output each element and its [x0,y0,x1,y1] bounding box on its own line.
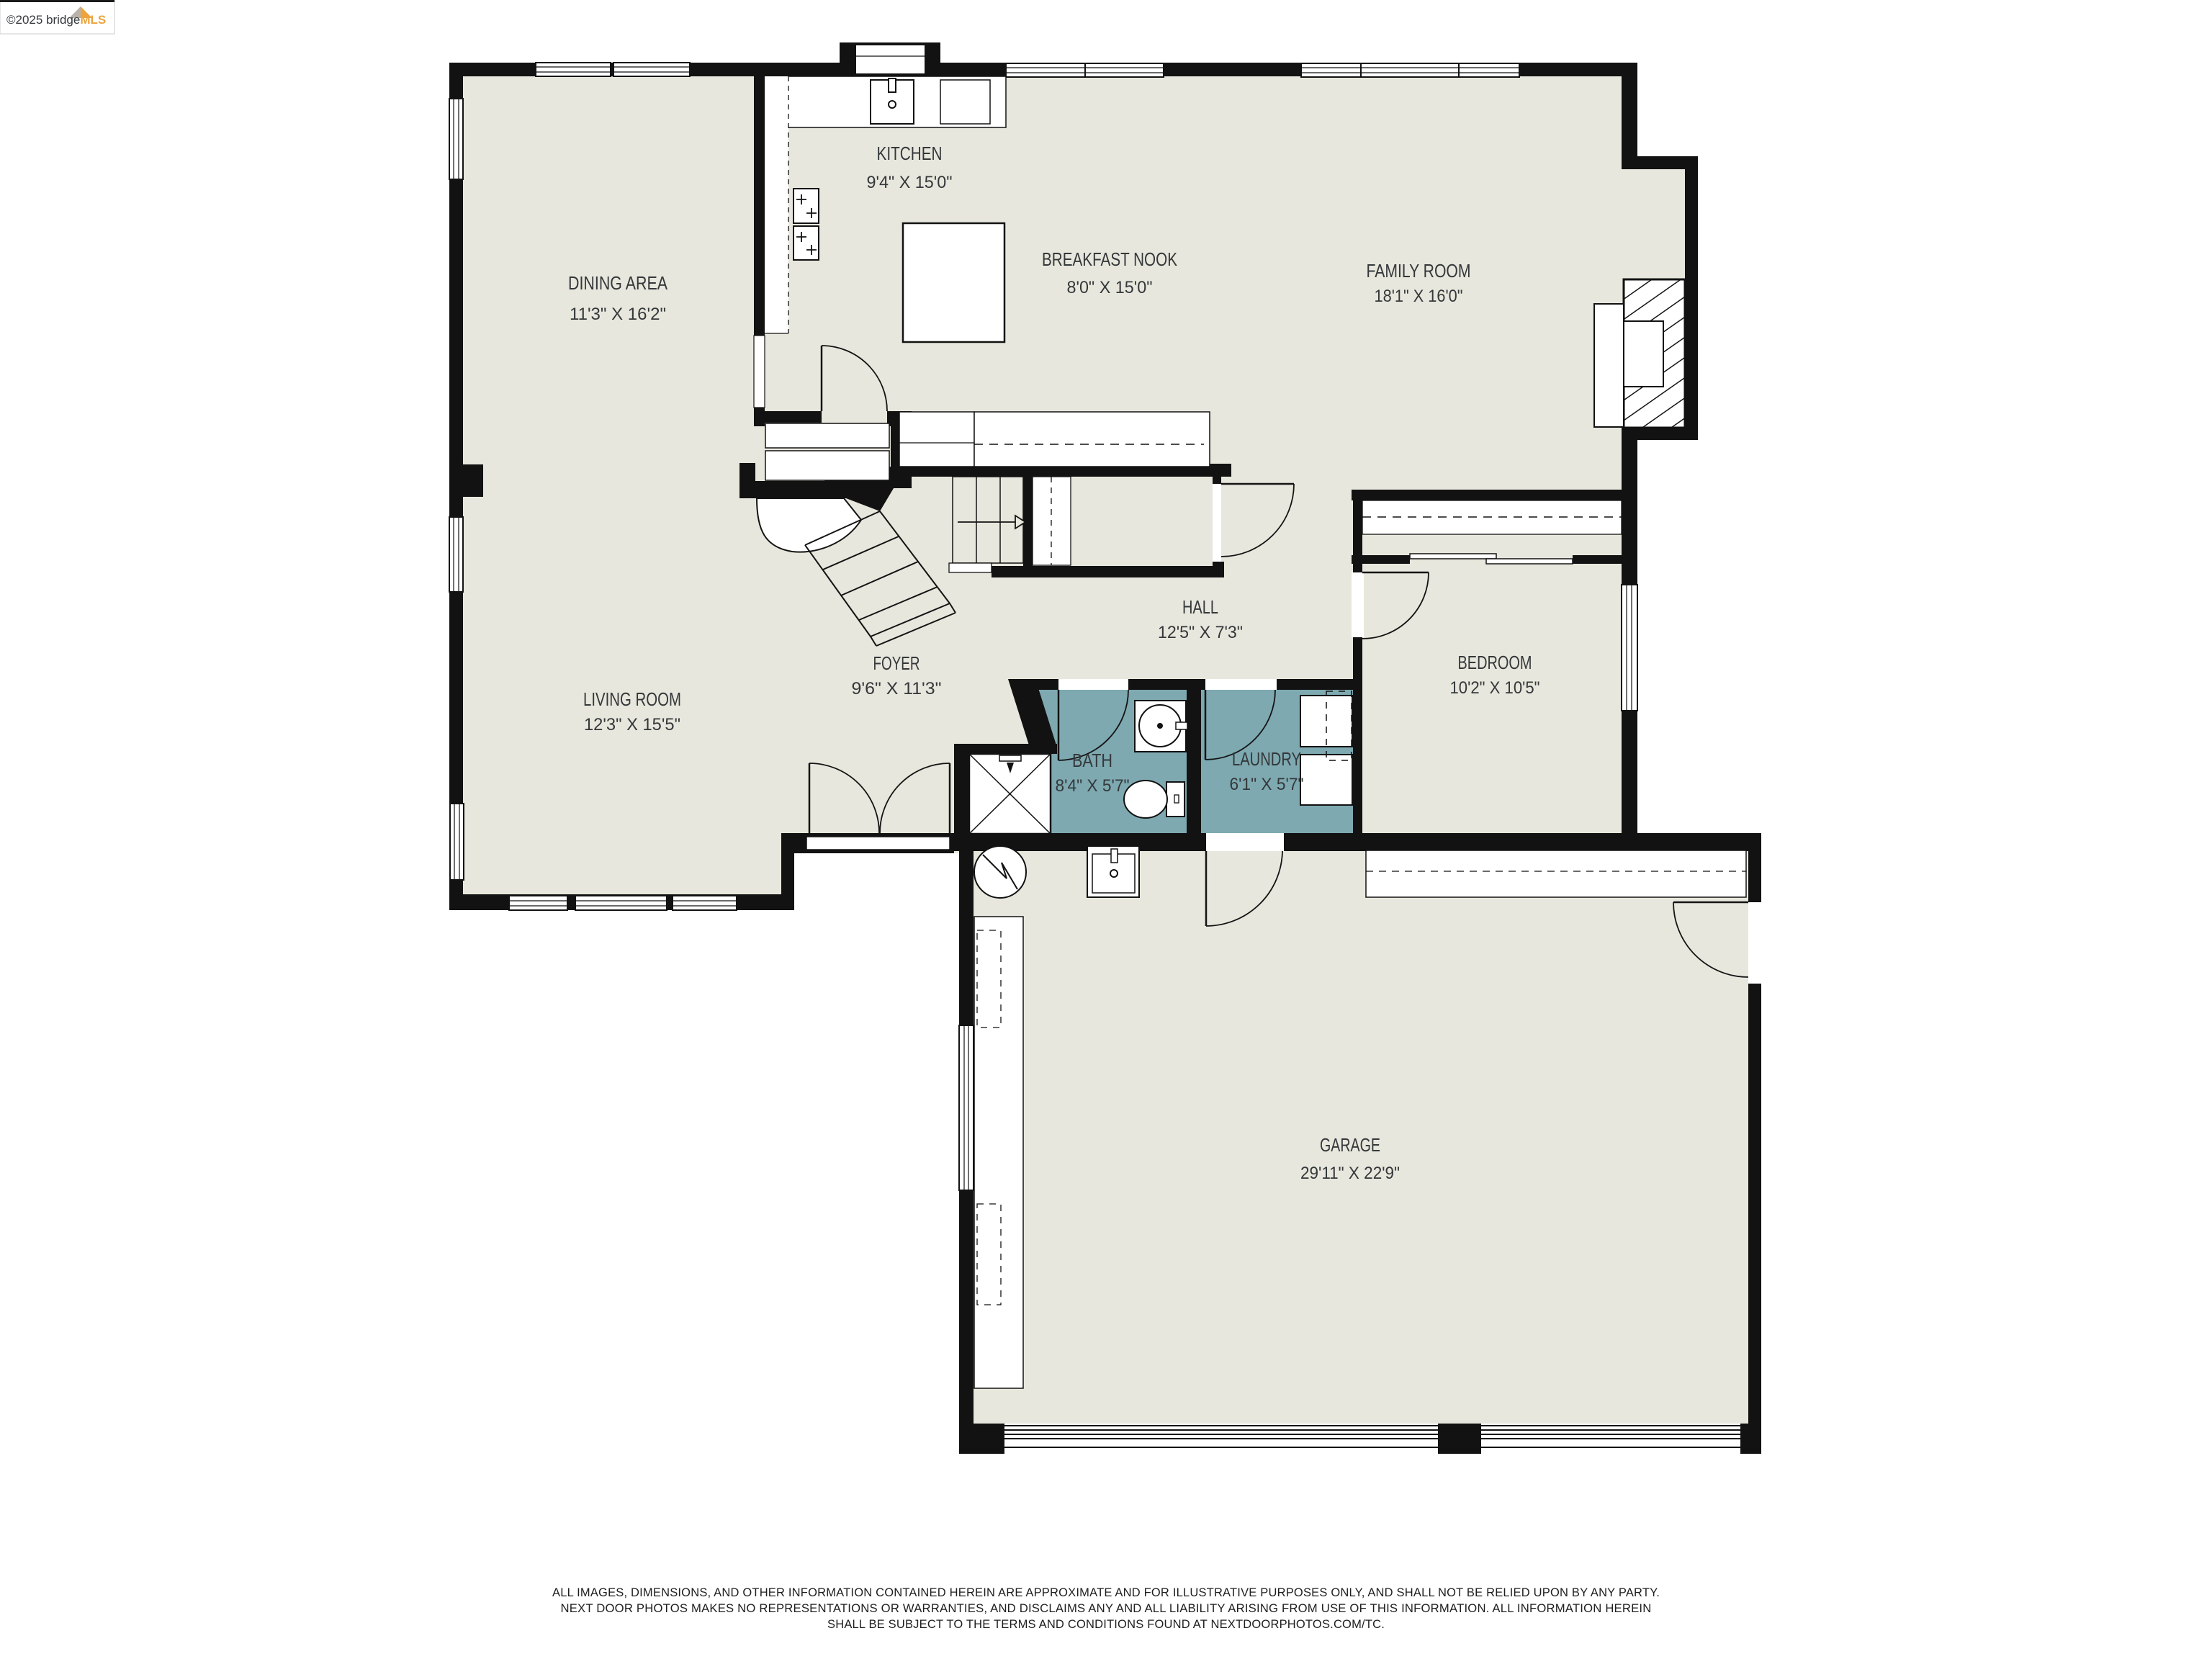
svg-text:©2025 bridgeMLS: ©2025 bridgeMLS [6,13,106,27]
svg-text:ALL IMAGES, DIMENSIONS, AND OT: ALL IMAGES, DIMENSIONS, AND OTHER INFORM… [552,1586,1660,1599]
svg-text:GARAGE: GARAGE [1320,1134,1380,1156]
svg-text:SHALL BE SUBJECT TO THE TERMS: SHALL BE SUBJECT TO THE TERMS AND CONDIT… [827,1617,1385,1631]
svg-text:FOYER: FOYER [873,652,920,674]
svg-text:29'11" X 22'9": 29'11" X 22'9" [1300,1164,1400,1183]
svg-text:18'1" X 16'0": 18'1" X 16'0" [1375,287,1463,306]
svg-text:8'0" X 15'0": 8'0" X 15'0" [1067,278,1153,297]
svg-text:NEXT DOOR PHOTOS MAKES NO REPR: NEXT DOOR PHOTOS MAKES NO REPRESENTATION… [561,1601,1652,1615]
svg-text:12'3" X 15'5": 12'3" X 15'5" [584,715,680,734]
svg-text:10'2" X 10'5": 10'2" X 10'5" [1450,678,1540,698]
svg-text:6'1" X 5'7": 6'1" X 5'7" [1230,775,1304,794]
svg-text:8'4" X 5'7": 8'4" X 5'7" [1056,776,1130,796]
svg-text:9'4" X 15'0": 9'4" X 15'0" [867,173,953,192]
svg-text:LIVING ROOM: LIVING ROOM [583,688,681,710]
svg-text:DINING AREA: DINING AREA [568,272,668,294]
svg-text:BATH: BATH [1072,750,1112,771]
svg-text:KITCHEN: KITCHEN [877,143,943,164]
svg-text:HALL: HALL [1182,596,1218,618]
svg-text:12'5" X 7'3": 12'5" X 7'3" [1158,623,1243,642]
svg-text:BREAKFAST NOOK: BREAKFAST NOOK [1042,248,1178,270]
svg-text:11'3" X 16'2": 11'3" X 16'2" [570,305,666,324]
svg-text:BEDROOM: BEDROOM [1458,652,1532,673]
svg-text:FAMILY ROOM: FAMILY ROOM [1367,260,1471,282]
svg-text:9'6" X 11'3": 9'6" X 11'3" [852,679,942,698]
svg-text:LAUNDRY: LAUNDRY [1232,748,1301,770]
